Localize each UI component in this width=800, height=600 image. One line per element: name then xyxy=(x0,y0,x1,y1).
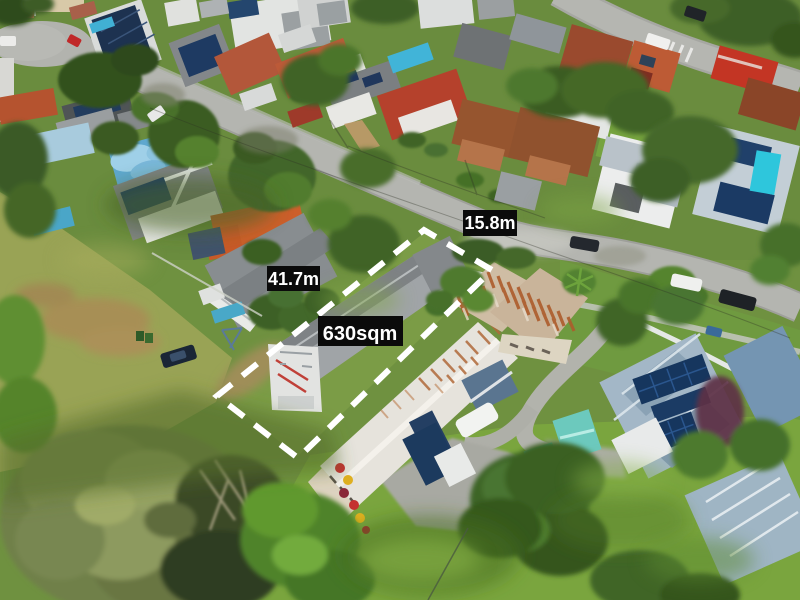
svg-text:630sqm: 630sqm xyxy=(323,323,398,345)
svg-text:41.7m: 41.7m xyxy=(268,269,319,289)
svg-text:15.8m: 15.8m xyxy=(464,213,515,233)
